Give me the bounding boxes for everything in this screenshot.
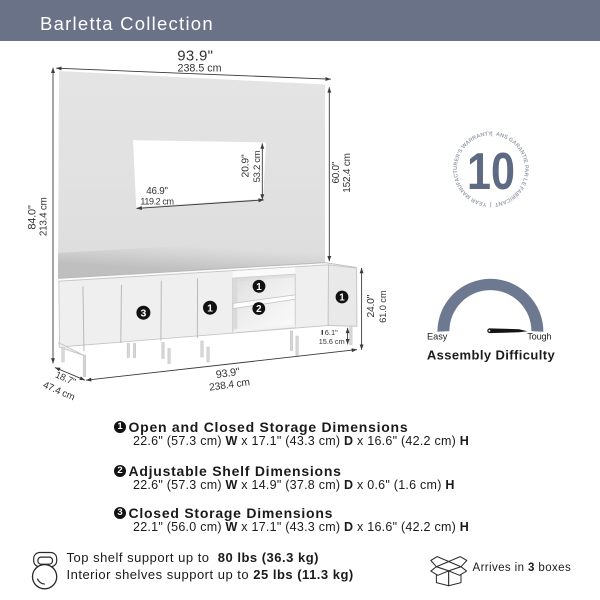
- svg-text:238.5 cm: 238.5 cm: [178, 63, 222, 75]
- svg-text:2: 2: [256, 304, 262, 315]
- svg-text:84.0": 84.0": [27, 205, 39, 230]
- svg-text:1: 1: [256, 282, 262, 293]
- svg-text:Easy: Easy: [427, 332, 448, 342]
- svg-text:53.2 cm: 53.2 cm: [252, 150, 263, 182]
- svg-text:Assembly Difficulty: Assembly Difficulty: [427, 347, 556, 362]
- svg-text:60.0": 60.0": [331, 161, 342, 183]
- svg-text:152.4 cm: 152.4 cm: [342, 153, 353, 193]
- svg-text:61.0 cm: 61.0 cm: [378, 290, 388, 323]
- svg-text:15.6 cm: 15.6 cm: [319, 337, 345, 346]
- svg-text:1: 1: [207, 303, 213, 315]
- svg-text:3: 3: [140, 308, 146, 320]
- svg-text:24.0": 24.0": [366, 294, 377, 317]
- svg-text:10: 10: [467, 143, 515, 201]
- svg-text:213.4 cm: 213.4 cm: [38, 197, 49, 236]
- svg-text:20.9": 20.9": [240, 154, 251, 177]
- svg-text:Tough: Tough: [527, 332, 551, 342]
- svg-text:238.4 cm: 238.4 cm: [209, 377, 251, 394]
- svg-text:1: 1: [339, 293, 345, 304]
- svg-text:119.2 cm: 119.2 cm: [140, 197, 173, 207]
- svg-text:46.9": 46.9": [146, 186, 168, 197]
